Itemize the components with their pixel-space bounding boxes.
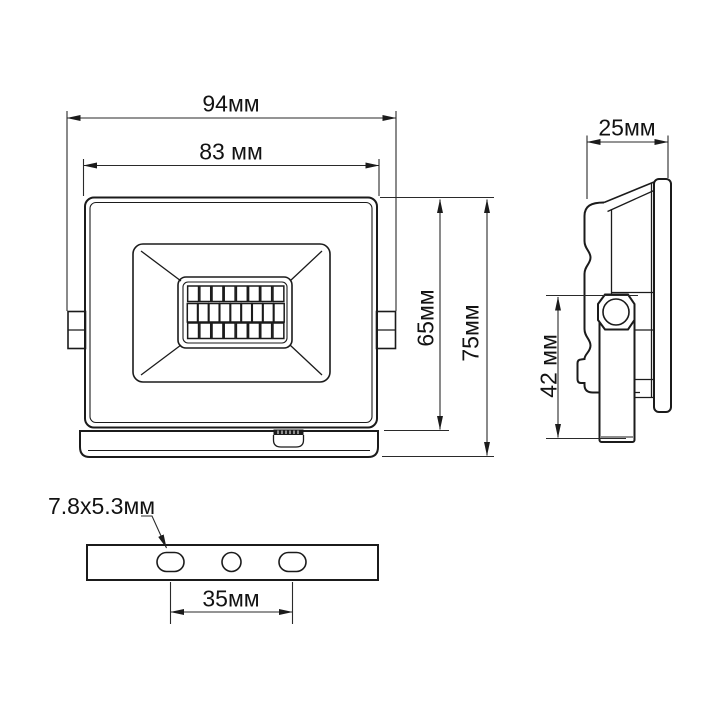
dim-body-width-83: [84, 159, 380, 196]
led-chip-grid: [187, 286, 284, 339]
label-body-height: 65мм: [415, 289, 438, 346]
front-view: [68, 198, 396, 458]
base-strip: [80, 431, 378, 457]
label-body-width: 83 мм: [199, 141, 263, 164]
technical-drawing-canvas: 94мм 83 мм 65мм 75мм 25мм 42 мм 7.8x5.3м…: [0, 0, 720, 720]
label-overall-height: 75мм: [460, 304, 483, 361]
back-plate: [654, 179, 671, 412]
label-slot-spacing: 35мм: [202, 588, 259, 611]
mounting-lug-right: [377, 312, 396, 349]
cable-gland: [274, 430, 304, 448]
dim-depth-25: [587, 136, 668, 200]
mounting-hole-center: [222, 553, 241, 572]
bracket-arm: [600, 315, 635, 442]
side-view: [578, 179, 672, 442]
swivel-nut: [598, 295, 635, 330]
mounting-slot-left: [157, 553, 184, 572]
mounting-slot-right: [279, 553, 306, 572]
label-overall-width: 94мм: [202, 93, 259, 116]
bottom-view: [87, 545, 378, 580]
label-slot-size: 7.8x5.3мм: [48, 495, 155, 518]
mounting-lug-left: [68, 312, 86, 349]
mounting-bar: [87, 545, 378, 580]
label-bracket-length: 42 мм: [538, 334, 561, 398]
label-depth: 25мм: [598, 117, 655, 140]
slot-size-leader: [141, 516, 167, 548]
technical-drawing: [0, 0, 720, 720]
